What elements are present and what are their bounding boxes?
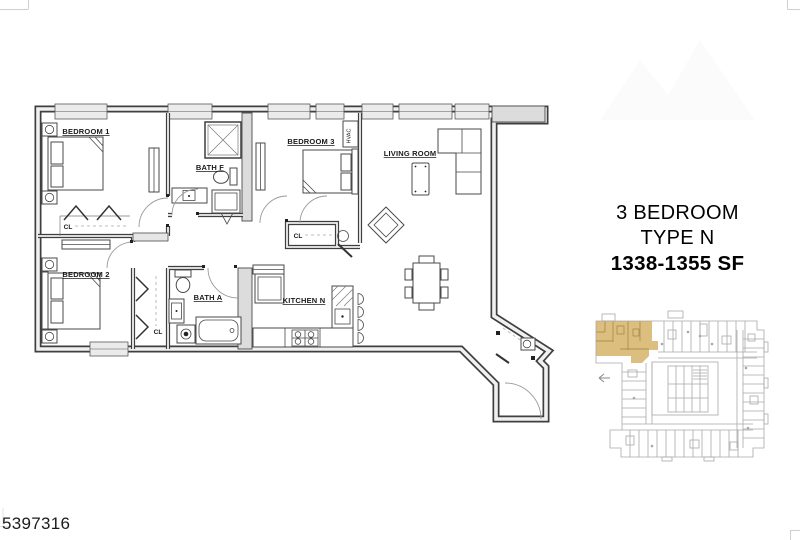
key-plan-entry-arrow-icon — [599, 374, 610, 382]
hvac-closet: HVAC — [343, 121, 358, 147]
faint-watermark — [600, 40, 755, 120]
room-label-bedroom-1: BEDROOM 1 — [62, 127, 109, 136]
hvac-label: HVAC — [347, 129, 353, 144]
hall-door-leaf — [133, 233, 168, 241]
room-label-bedroom-3: BEDROOM 3 — [287, 137, 334, 146]
photo-id: 5397316 — [2, 514, 70, 534]
unit-bedrooms: 3 BEDROOM — [585, 201, 770, 226]
room-label-bath-a: BATH A — [194, 293, 223, 302]
listing-floorplan-image: HVAC — [0, 0, 800, 540]
closet-label-1: CL — [64, 224, 73, 231]
room-label-bath-f: BATH F — [196, 163, 224, 172]
closet-label-2: CL — [154, 329, 163, 336]
unit-type: TYPE N — [585, 226, 770, 251]
room-label-bedroom-2: BEDROOM 2 — [62, 270, 109, 279]
key-plan — [596, 311, 768, 461]
unit-floor-plan: HVAC — [38, 104, 549, 419]
room-label-kitchen-n: KITCHEN N — [283, 296, 326, 305]
room-label-living-room: LIVING ROOM — [384, 149, 437, 158]
closet-label-3: CL — [294, 233, 303, 240]
unit-title-block: 3 BEDROOM TYPE N 1338-1355 SF — [585, 201, 770, 276]
unit-square-footage: 1338-1355 SF — [585, 251, 770, 276]
